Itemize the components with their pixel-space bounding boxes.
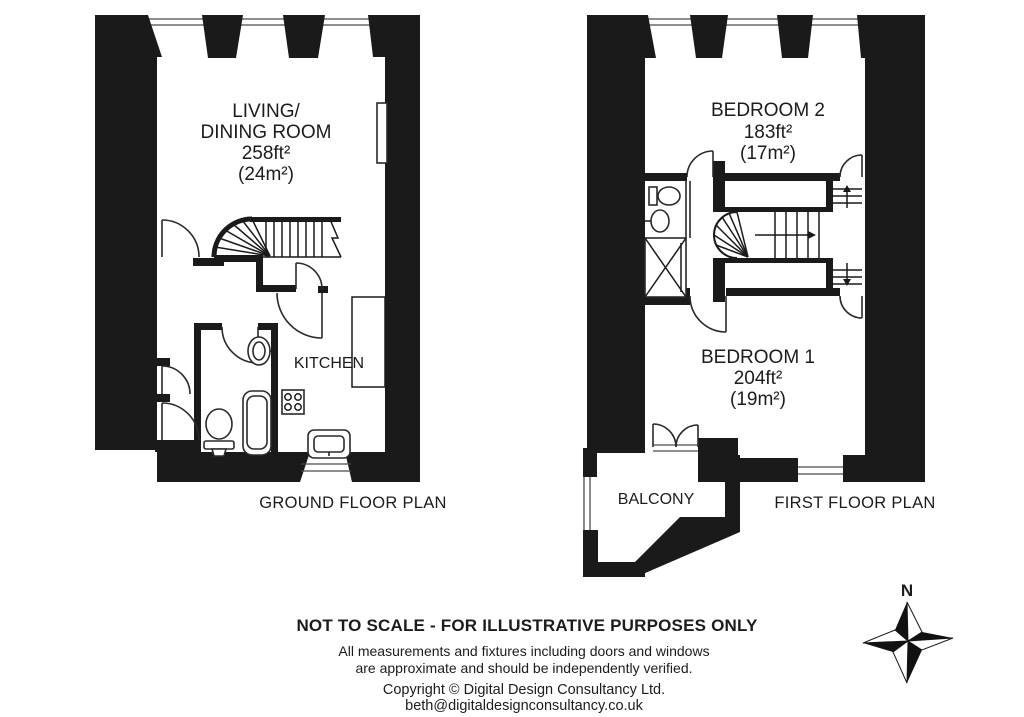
disclaimer-text: NOT TO SCALE - FOR ILLUSTRATIVE PURPOSES… (296, 616, 758, 635)
balcony-label: BALCONY (618, 491, 695, 508)
kitchen-label: KITCHEN (294, 355, 364, 372)
email-text: beth@digitaldesignconsultancy.co.uk (405, 698, 643, 714)
bedroom1-area-m: (19m²) (730, 389, 786, 410)
door-arc (162, 403, 199, 440)
hob-icon (282, 390, 304, 414)
sink-icon (645, 210, 669, 232)
kitchen-fixtures-gf (282, 297, 385, 458)
door-arc (162, 220, 199, 257)
door-arc (162, 366, 190, 394)
balcony-railing (584, 477, 590, 530)
bedroom1-area-ft: 204ft² (734, 368, 783, 389)
ground-floor-caption: GROUND FLOOR PLAN (259, 494, 447, 512)
bathroom-fixtures-gf (204, 337, 275, 456)
compass-rose: N (863, 581, 953, 683)
living-dining-room-area-m: (24m²) (238, 164, 294, 185)
bedroom1-label: BEDROOM 1 (701, 347, 815, 368)
bedroom2-area-m: (17m²) (740, 143, 796, 164)
window-right-gf (377, 103, 387, 163)
first-floor-caption: FIRST FLOOR PLAN (774, 494, 935, 512)
sink-icon (248, 337, 275, 365)
living-dining-room-label-line2: DINING ROOM (201, 122, 332, 143)
floorplan-page: LIVING/ DINING ROOM 258ft² (24m²) KITCHE… (0, 0, 1024, 717)
door-arc (840, 296, 862, 318)
door-arc (687, 151, 713, 177)
living-dining-room-area-ft: 258ft² (242, 143, 291, 164)
bathtub-icon (243, 391, 271, 455)
first-floor-plan: BEDROOM 2 183ft² (17m²) BEDROOM 1 204ft²… (583, 15, 936, 577)
window-bottom-gf (301, 464, 351, 471)
living-dining-room-label-line1: LIVING/ (232, 101, 300, 122)
window-bottom-ff (798, 467, 843, 474)
footer: NOT TO SCALE - FOR ILLUSTRATIVE PURPOSES… (296, 616, 758, 714)
door-arc (277, 293, 322, 338)
shower-icon (645, 238, 686, 297)
stair-break-line (329, 217, 341, 257)
stair-winders-gf (215, 219, 270, 256)
note-line-1: All measurements and fixtures including … (338, 643, 709, 659)
kitchen-counter (352, 297, 385, 387)
staircase-ff (714, 185, 862, 286)
door-arc (840, 155, 862, 177)
compass-star (863, 602, 953, 683)
copyright-text: Copyright © Digital Design Consultancy L… (383, 682, 665, 698)
floorplan-canvas: LIVING/ DINING ROOM 258ft² (24m²) KITCHE… (0, 0, 1024, 717)
bathroom-fixtures-ff (645, 187, 686, 297)
exterior-walls-ff (587, 15, 925, 482)
bedroom2-area-ft: 183ft² (744, 122, 793, 143)
note-line-2: are approximate and should be independen… (355, 660, 692, 676)
door-arc (296, 263, 322, 289)
north-label: N (901, 581, 913, 600)
bedroom2-label: BEDROOM 2 (711, 100, 825, 121)
toilet-icon (204, 409, 234, 456)
toilet-icon (649, 187, 680, 205)
kitchen-sink-icon (308, 430, 350, 458)
french-doors (653, 424, 698, 451)
stair-treads-gf (263, 222, 341, 257)
ground-floor-plan: LIVING/ DINING ROOM 258ft² (24m²) KITCHE… (95, 15, 447, 512)
stair-down-arrow (843, 263, 851, 286)
staircase-gf (214, 217, 341, 293)
